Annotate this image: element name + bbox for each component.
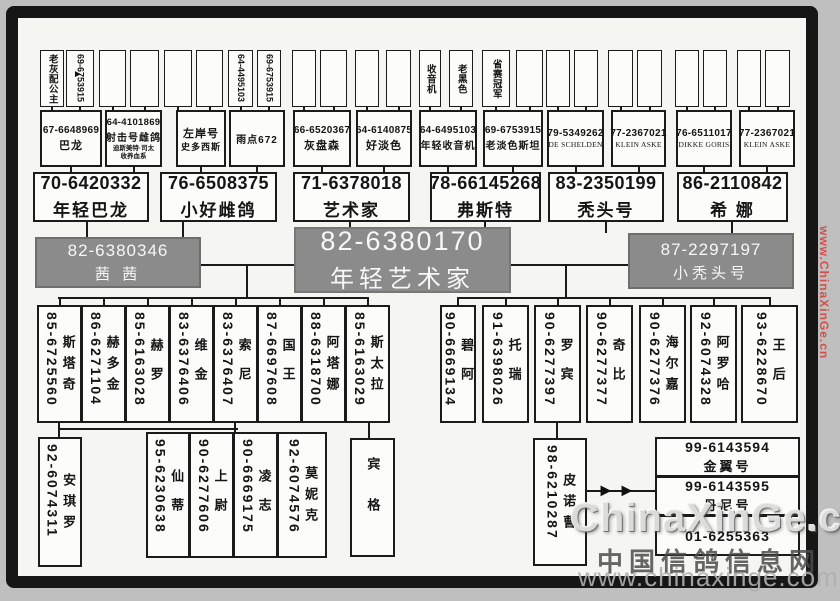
ancestor-gen1-box: 收音机 [419, 50, 441, 107]
ring-number: 77-2367021 [739, 128, 795, 139]
ring-number: 87-2297197 [661, 240, 762, 260]
ring-number: 01-6255363 [685, 528, 770, 544]
connector-line [605, 222, 607, 233]
bird-name: KLEIN ASKE [615, 140, 662, 149]
descendant-stack-box: 01-6255363 [655, 515, 800, 556]
descendant-box: 90-6669175凌志 [233, 432, 278, 558]
ancestor-gen1-box [320, 50, 347, 107]
offspring-box: 85-6163028赫罗 [125, 305, 170, 423]
arrow-right-icon: ► [618, 481, 636, 499]
offspring-box: 88-6318700阿塔娜 [301, 305, 346, 423]
offspring-box: 83-6376407索尼 [213, 305, 258, 423]
descendant-box: 92-6074576莫妮克 [277, 432, 327, 558]
connector-line [235, 297, 237, 305]
ring-number: 82-6380346 [68, 241, 169, 261]
pedigree-diagram: 老灰配公主69-675391564-449510369-6753915收音机老黑… [0, 0, 840, 601]
ring-number: 93-6228670 [754, 312, 769, 407]
bird-name: 阿塔娜 [325, 335, 339, 398]
ring-number: 92-6074576 [287, 439, 302, 534]
connector-line [731, 222, 733, 233]
offspring-box: 87-6697608国王 [257, 305, 302, 423]
bird-name: 好淡色 [366, 137, 402, 153]
connector-line [86, 222, 88, 237]
bird-name: 宾格 [366, 457, 380, 539]
connector-line [505, 297, 507, 305]
ring-number: 76-6508375 [168, 173, 269, 194]
ancestor-gen1-box [703, 50, 727, 107]
bird-name: 丹尼号 [703, 495, 751, 514]
ancestor-gen1-box [546, 50, 570, 107]
ring-number: 64-6495103 [420, 125, 476, 136]
ancestor-gen3-box: 78-66145268弗斯特 [430, 172, 541, 222]
connector-line [58, 423, 60, 437]
bird-name: 赫多金 [105, 335, 119, 398]
ring-number: 70-6420332 [40, 173, 141, 194]
descendant-stack-box: 99-6143595丹尼号 [655, 476, 800, 516]
bird-name: 弗斯特 [457, 196, 514, 221]
ring-number: 64-4101869 [107, 117, 161, 128]
connector-line [662, 297, 664, 305]
bird-name: 希 娜 [710, 196, 755, 221]
offspring-box: 93-6228670王后 [741, 305, 798, 423]
ancestor-gen1-box [637, 50, 662, 107]
ancestor-gen1-box [164, 50, 192, 107]
bird-name: 雨点672 [236, 131, 278, 146]
ring-number: 69-6753915 [265, 54, 274, 102]
bird-name: DIKKE GORIS [679, 140, 730, 149]
bird-name: 小好雌鸽 [181, 196, 257, 221]
bird-name: 罗宾 [559, 338, 573, 396]
bird-name: DE SCHELDEN [548, 140, 602, 149]
ring-number: 90-6277606 [196, 439, 211, 534]
ring-number: 76-6511017 [676, 128, 732, 139]
bird-name: KLEIN ASKE [744, 140, 791, 149]
connector-line [565, 264, 567, 297]
bird-name: 金翼号 [703, 456, 751, 475]
mate-box-right: 87-2297197小秃头号 [628, 233, 794, 289]
bird-name: 射击号雌鸽 [106, 129, 161, 144]
bird-name: 阿罗哈 [715, 335, 729, 398]
connector-line [59, 297, 61, 305]
ring-number: 78-66145268 [430, 173, 542, 194]
ring-number: 79-5349262 [547, 128, 603, 139]
bird-name: 上尉 [213, 469, 227, 527]
descendant-stack-box: 99-6143594金翼号 [655, 437, 800, 477]
descendant-box: 90-6277606上尉 [189, 432, 234, 558]
bird-name: 王后 [771, 338, 785, 396]
ring-number: 87-6697608 [264, 312, 279, 407]
ring-number: 69-6753915 [485, 125, 541, 136]
ancestor-gen2-box: 左岸号史多西斯 [176, 110, 226, 167]
ring-number: 90-6669134 [443, 312, 458, 407]
ring-number: 86-2110842 [682, 173, 782, 194]
ring-number: 85-6725560 [44, 312, 59, 407]
ancestor-gen1-box: 老灰配公主 [40, 50, 64, 107]
connector-line [147, 297, 149, 305]
bird-name: 省赛冠军 [491, 59, 501, 99]
connector-line [556, 423, 558, 438]
connector-line [191, 297, 193, 305]
ring-number: 82-6380170 [320, 226, 484, 257]
ancestor-gen1-box [292, 50, 316, 107]
descendant-box: 95-6230638仙蒂 [146, 432, 190, 558]
ancestor-gen2-box: 79-5349262DE SCHELDEN [547, 110, 604, 167]
ancestor-gen2-box: 67-6648969巴龙 [40, 110, 102, 167]
connector-line [367, 297, 369, 305]
bird-name: 斯太拉 [369, 335, 383, 398]
ancestor-gen1-box [386, 50, 411, 107]
ring-number: 83-6376407 [220, 312, 235, 407]
ring-number: 66-6520367 [294, 125, 350, 136]
ancestor-gen1-box [516, 50, 543, 107]
offspring-box: 90-6669134碧阿 [440, 305, 476, 423]
ancestor-gen1-box [130, 50, 159, 107]
connector-line [279, 297, 281, 305]
ancestor-gen1-box: 省赛冠军 [482, 50, 510, 107]
bird-name: 艺术家 [323, 196, 380, 221]
bird-name: 年轻收音机 [421, 137, 476, 152]
ancestor-gen2-box: 77-2367021KLEIN ASKE [611, 110, 666, 167]
ancestor-gen2-box: 64-6140875好淡色 [356, 110, 412, 167]
ancestor-gen3-box: 76-6508375小好雌鸽 [160, 172, 277, 222]
ring-number: 99-6143594 [685, 439, 770, 455]
bird-name: 安琪罗 [62, 473, 76, 536]
connector-line [58, 428, 238, 430]
bird-name: 皮诺曹 [562, 473, 576, 536]
connector-line [557, 297, 559, 305]
ring-number: 99-6143595 [685, 478, 770, 494]
ancestor-gen2-box: 69-6753915老淡色斯坦 [483, 110, 543, 167]
bird-name: 仙蒂 [170, 469, 184, 527]
ancestor-gen2-box: 76-6511017DIKKE GORIS [676, 110, 732, 167]
ancestor-gen1-box [675, 50, 699, 107]
ancestor-gen1-box: 老黑色 [449, 50, 473, 107]
ring-number: 92-6074328 [698, 312, 713, 407]
ring-number: 64-4495103 [236, 54, 245, 102]
ancestor-gen2-box: 66-6520367灰盘森 [293, 110, 351, 167]
ancestor-gen1-box: 64-4495103 [228, 50, 253, 107]
mate-box-left: 82-6380346茜 茜 [35, 237, 201, 288]
ancestor-gen1-box [765, 50, 790, 107]
ring-number: 83-2350199 [555, 173, 656, 194]
ring-number: 85-6163029 [352, 312, 367, 407]
ancestor-gen1-box [608, 50, 633, 107]
bird-name: 收音机 [425, 64, 435, 94]
connector-line [368, 423, 370, 438]
connector-line [246, 264, 248, 297]
strain-note: 收养血系 [121, 153, 147, 160]
ancestor-gen3-box: 86-2110842希 娜 [677, 172, 788, 222]
offspring-box: 92-6074328阿罗哈 [690, 305, 737, 423]
offspring-box: 91-6398026托瑞 [482, 305, 529, 423]
bird-name: 斯塔奇 [61, 335, 75, 398]
ring-number: 90-6277377 [594, 312, 609, 407]
ring-number: 90-6669175 [240, 439, 255, 534]
ancestor-gen1-box [737, 50, 761, 107]
bird-name: 奇比 [611, 338, 625, 396]
ring-number: 92-6074311 [45, 444, 60, 538]
bird-name: 维金 [193, 338, 207, 396]
ancestor-gen3-box: 70-6420332年轻巴龙 [33, 172, 149, 222]
offspring-box: 85-6725560斯塔奇 [37, 305, 82, 423]
strain-note: 迪斯美特·司太 [113, 145, 154, 152]
connector-line [713, 297, 715, 305]
bird-name: 索尼 [237, 338, 251, 396]
ancestor-gen1-box: 69-6753915 [257, 50, 281, 107]
descendant-box: 宾格 [350, 438, 395, 557]
ring-number: 85-6163028 [132, 312, 147, 407]
ring-number: 91-6398026 [490, 312, 505, 407]
bird-name: 灰盘森 [304, 137, 340, 153]
connector-line [457, 297, 459, 305]
bird-name: 秃头号 [578, 196, 635, 221]
offspring-box: 83-6376406维金 [169, 305, 214, 423]
ancestor-gen1-box [574, 50, 598, 107]
ancestor-gen2-box: 77-2367021KLEIN ASKE [739, 110, 795, 167]
bird-name: 年轻巴龙 [53, 196, 129, 221]
ring-number: 83-6376406 [176, 312, 191, 407]
connector-line [234, 423, 236, 432]
offspring-box: 90-6277377奇比 [586, 305, 633, 423]
ancestor-gen2-box: 64-6495103年轻收音机 [419, 110, 477, 167]
pedigree-chart-photo: 老灰配公主69-675391564-449510369-6753915收音机老黑… [0, 0, 840, 601]
connector-line [609, 297, 611, 305]
ring-number: 98-6210287 [545, 445, 560, 540]
offspring-box: 86-6271104赫多金 [81, 305, 126, 423]
bird-name: 碧阿 [460, 338, 474, 396]
connector-line [182, 222, 184, 237]
ancestor-gen1-box [355, 50, 379, 107]
connector-line [103, 297, 105, 305]
ancestor-gen1-box [99, 50, 126, 107]
ancestor-gen1-box [196, 50, 223, 107]
offspring-box: 90-6277376海尔嘉 [639, 305, 686, 423]
bird-name: 海尔嘉 [664, 335, 678, 398]
ring-number: 95-6230638 [153, 439, 168, 534]
bird-name: 国王 [281, 338, 295, 396]
strain-note: 史多西斯 [181, 142, 221, 152]
bird-name: 莫妮克 [304, 466, 318, 529]
ancestor-gen3-box: 71-6378018艺术家 [293, 172, 410, 222]
ring-number: 88-6318700 [308, 312, 323, 407]
bird-name: 年轻艺术家 [330, 259, 475, 294]
offspring-box: 90-6277397罗宾 [534, 305, 581, 423]
offspring-box: 85-6163029斯太拉 [345, 305, 390, 423]
arrow-right-icon: ► [73, 70, 83, 80]
bird-name: 托瑞 [507, 338, 521, 396]
connector-line [323, 297, 325, 305]
ring-number: 90-6277397 [542, 312, 557, 407]
ancestor-gen3-box: 83-2350199秃头号 [548, 172, 664, 222]
bird-name: 凌志 [257, 469, 271, 527]
bird-name: 巴龙 [59, 137, 83, 153]
bird-name: 老黑色 [456, 64, 466, 94]
ring-number: 90-6277376 [647, 312, 662, 407]
ring-number: 64-6140875 [356, 125, 412, 136]
bird-name: 赫罗 [149, 338, 163, 396]
bird-name: 左岸号 [183, 125, 219, 141]
ring-number: 67-6648969 [43, 125, 99, 136]
connector-line [769, 297, 771, 305]
descendant-box: 98-6210287皮诺曹 [533, 438, 587, 566]
ring-number: 86-6271104 [88, 312, 103, 406]
ring-number: 71-6378018 [301, 173, 402, 194]
bird-name: 小秃头号 [673, 262, 749, 283]
arrow-right-icon: ► [597, 481, 615, 499]
ring-number: 77-2367021 [610, 128, 666, 139]
ancestor-gen2-box: 64-4101869射击号雌鸽迪斯美特·司太收养血系 [105, 110, 162, 167]
bird-name: 老灰配公主 [47, 54, 57, 104]
ancestor-gen2-box: 雨点672 [229, 110, 285, 167]
central-bird-box: 82-6380170年轻艺术家 [294, 227, 511, 293]
descendant-box: 92-6074311安琪罗 [38, 437, 82, 567]
bird-name: 老淡色斯坦 [486, 137, 541, 152]
connector-line [511, 264, 628, 266]
bird-name: 茜 茜 [95, 263, 141, 284]
